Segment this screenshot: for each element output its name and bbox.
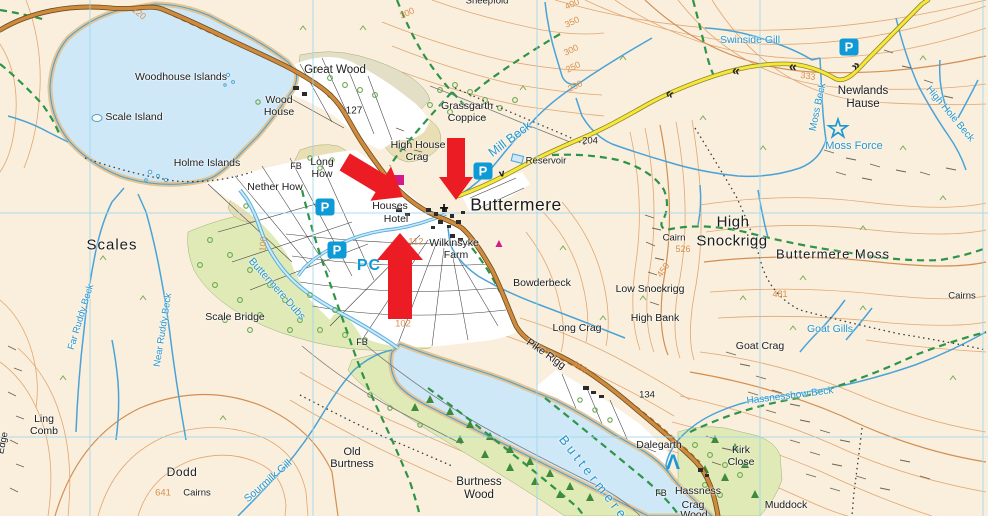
os-map-buttermere: Woodhouse IslandsScale IslandHolme Islan… <box>0 0 988 516</box>
map-artwork <box>0 0 988 516</box>
reservoir <box>511 154 523 163</box>
road-newlands-casing <box>458 0 928 196</box>
road-newlands <box>458 0 928 196</box>
far-ruddy-beck <box>76 188 124 432</box>
near-ruddy-beck <box>138 194 186 440</box>
